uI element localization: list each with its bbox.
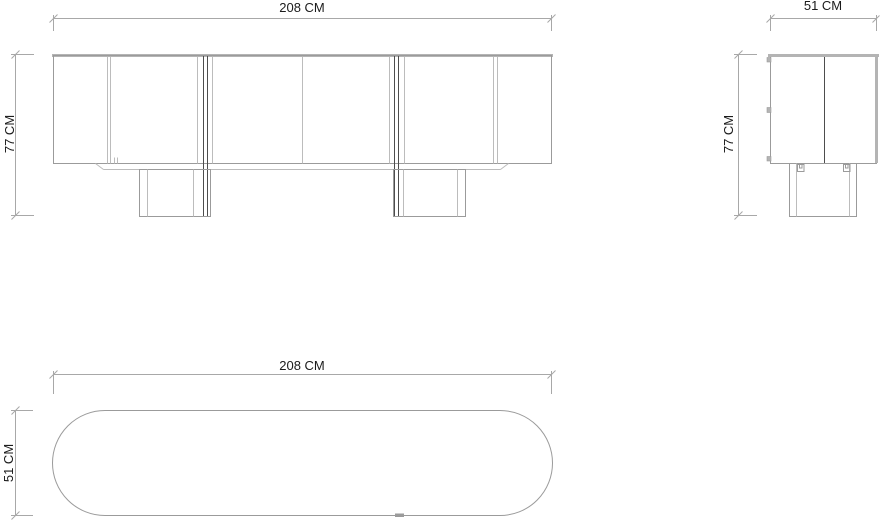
door-bottom-detail (115, 158, 118, 164)
side-height-label: 77 CM (721, 115, 736, 153)
furniture-technical-drawing: 208 CM 77 CM (0, 0, 880, 521)
leg-connector-left-slot (800, 165, 803, 169)
side-cabinet (767, 55, 879, 217)
side-body-outline (771, 56, 877, 164)
side-view: 51 CM 77 CM (721, 0, 880, 220)
plan-view: 208 CM 51 CM (1, 358, 556, 520)
front-height-dimension: 77 CM (2, 51, 34, 220)
hinge-middle (767, 108, 771, 113)
dimension-extension-lines (54, 15, 552, 31)
front-left-leg-outline (140, 170, 211, 217)
front-view: 208 CM 77 CM (2, 0, 556, 220)
side-width-label: 51 CM (804, 0, 842, 13)
side-width-dimension: 51 CM (767, 0, 880, 31)
dimension-extension-lines (771, 15, 877, 31)
plan-width-label: 208 CM (279, 358, 325, 373)
hinge-top (767, 58, 771, 63)
front-height-label: 77 CM (2, 115, 17, 153)
plan-depth-label: 51 CM (1, 444, 16, 482)
front-width-dimension: 208 CM (50, 0, 556, 31)
door-divider-lines (108, 57, 498, 164)
front-left-leg-inner-lines (148, 170, 194, 217)
front-width-label: 208 CM (279, 0, 325, 15)
base-rail-chamfers (96, 164, 509, 170)
front-right-leg-outline (394, 170, 466, 217)
dimension-extension-lines (734, 55, 757, 216)
side-height-dimension: 77 CM (721, 51, 757, 220)
plan-depth-dimension: 51 CM (1, 407, 33, 520)
plan-width-dimension: 208 CM (50, 358, 556, 394)
plan-top-outline (53, 411, 553, 518)
door-gap-shadow-lines (204, 56, 399, 217)
front-cabinet (52, 56, 553, 217)
plan-edge-detail-mark (395, 514, 404, 518)
tabletop-outline (53, 411, 553, 516)
leg-connector-right-slot (846, 165, 849, 169)
hinge-bottom (767, 157, 771, 162)
front-right-leg-inner-lines (404, 170, 458, 217)
